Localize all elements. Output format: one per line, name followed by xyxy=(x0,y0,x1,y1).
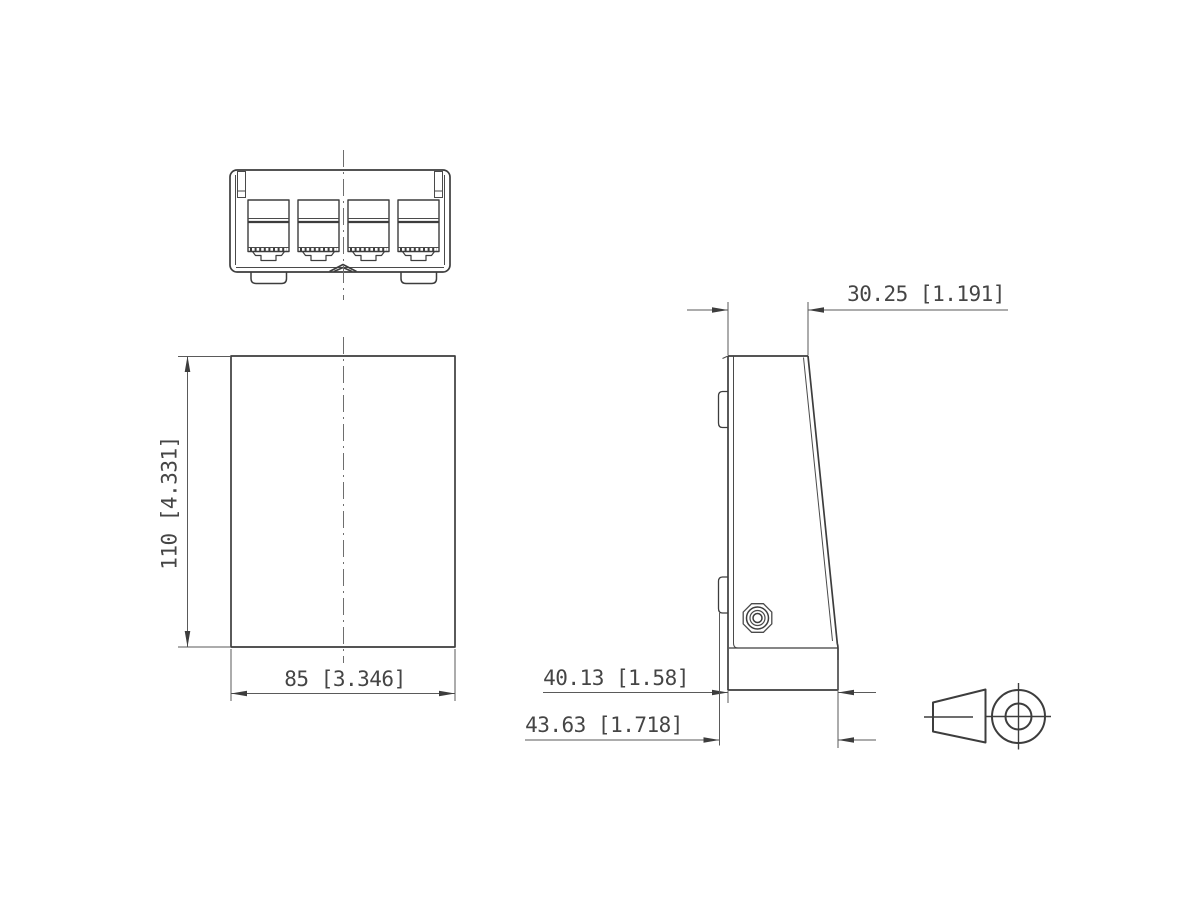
jack-latch xyxy=(403,252,435,261)
screw-boss xyxy=(743,604,772,633)
top-view-foot-left xyxy=(251,272,287,284)
jack-latch xyxy=(353,252,385,261)
front-height-label: 110 [4.331] xyxy=(158,436,182,570)
top-view-foot-right xyxy=(401,272,437,284)
dimension-side-top-depth: 30.25 [1.191] xyxy=(687,282,1008,356)
top-view-clip-left xyxy=(238,172,246,198)
rj45-jack-4 xyxy=(398,200,439,261)
side-slant-inner-edge xyxy=(804,358,833,642)
side-slant-edge xyxy=(808,356,838,648)
dimension-front-height: 110 [4.331] xyxy=(158,356,231,647)
rj45-jack-1 xyxy=(248,200,289,261)
side-overall-depth-label: 43.63 [1.718] xyxy=(525,713,683,737)
side-top-depth-label: 30.25 [1.191] xyxy=(847,282,1005,306)
top-view-clip-right xyxy=(435,172,443,198)
front-view: 110 [4.331] 85 [3.346] xyxy=(158,337,456,701)
side-clip-upper xyxy=(719,392,729,428)
rj45-jack-2 xyxy=(298,200,339,261)
side-left-inner-edge xyxy=(734,357,739,649)
rj45-jack-3 xyxy=(348,200,389,261)
side-clip-lower xyxy=(719,577,729,613)
jack-latch xyxy=(303,252,335,261)
technical-drawing-canvas: 110 [4.331] 85 [3.346] xyxy=(0,0,1200,900)
top-view xyxy=(230,150,450,300)
jack-latch xyxy=(253,252,285,261)
drawing-svg: 110 [4.331] 85 [3.346] xyxy=(0,0,1200,900)
first-angle-projection-icon xyxy=(924,683,1051,750)
front-width-label: 85 [3.346] xyxy=(284,667,405,691)
side-body-depth-label: 40.13 [1.58] xyxy=(543,666,689,690)
side-view: 30.25 [1.191] 40.13 [1.58] 43.63 [1.718] xyxy=(525,282,1008,748)
projection-cone xyxy=(933,690,986,743)
